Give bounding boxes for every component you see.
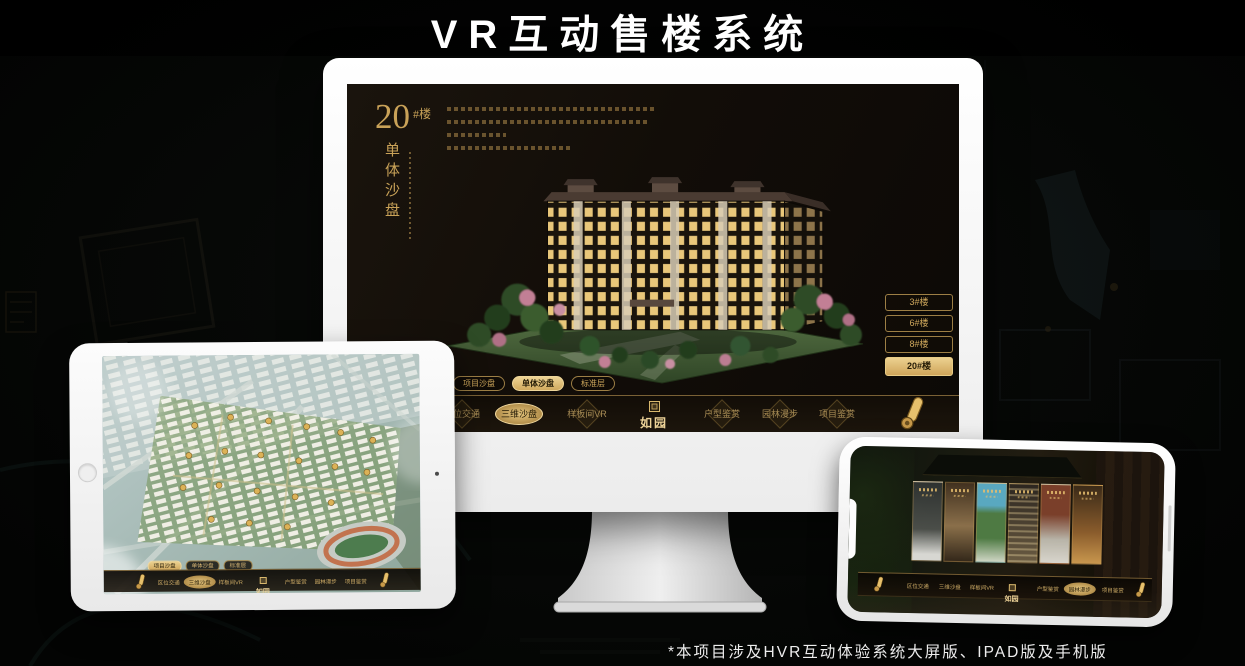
floor-button-group: 3#楼 6#楼 8#楼 20#楼 [885,294,953,380]
scroll-icon[interactable] [378,571,393,589]
pavilion-roof-silhouette [922,447,1083,478]
nav-item[interactable]: 样板间VR [558,396,616,432]
nav-item[interactable]: 三维沙盘 [935,583,965,592]
nav-item[interactable]: 区位交通 [903,582,933,591]
seal-icon [649,401,660,412]
nav-item[interactable]: 项目鉴赏 [341,577,371,585]
floor-button[interactable]: 3#楼 [885,294,953,311]
nav-item-active[interactable]: 三维沙盘 [490,396,548,432]
brand-logo-text: 如园 [999,596,1025,604]
floor-button[interactable]: 6#楼 [885,315,953,332]
nav-item-active[interactable]: 园林漫步 [1064,582,1096,596]
view-tab-group: 项目沙盘 单体沙盘 标准层 [453,376,615,391]
tablet-screen: 项目沙盘 单体沙盘 标准层 区位交通 三维沙盘 样板间VR 如园 户型鉴赏 园林… [102,354,421,594]
nav-item[interactable]: 园林漫步 [751,396,809,432]
nav-item[interactable]: 样板间VR [967,583,997,592]
gallery-panel-row [911,481,1103,565]
nav-item[interactable]: 样板间VR [216,578,246,586]
main-nav-bar: 区位交通 三维沙盘 样板间VR 如园 户型鉴赏 园林漫步 项目鉴赏 [104,568,421,592]
page-title: VR互动售楼系统 [0,2,1245,60]
tablet: 项目沙盘 单体沙盘 标准层 区位交通 三维沙盘 样板间VR 如园 户型鉴赏 园林… [69,341,456,612]
seal-icon [259,577,266,584]
phone: 区位交通 三维沙盘 样板间VR 如园 户型鉴赏 园林漫步 项目鉴赏 [836,437,1176,628]
monitor-stand [540,510,780,615]
side-button[interactable] [1168,505,1172,551]
footnote: *本项目涉及HVR互动体验系统大屏版、IPAD版及手机版 [668,640,1108,662]
gallery-panel[interactable] [1007,483,1039,564]
view-tab-active[interactable]: 单体沙盘 [512,376,564,391]
promo-poster: VR互动售楼系统 20 #楼 单体沙盘 [0,0,1245,666]
camera-dot [435,472,439,476]
headline-vertical: 单体沙盘 [381,142,402,222]
nav-item[interactable]: 项目鉴赏 [1098,586,1128,595]
aerial-map-view[interactable] [102,354,421,594]
headline-english-line [409,152,411,240]
nav-item[interactable]: 户型鉴赏 [1033,585,1063,594]
nav-item[interactable]: 项目鉴赏 [808,396,866,432]
brand-logo: 如园 [999,578,1026,604]
headline: 20 #楼 单体沙盘 [375,100,431,222]
building-3d-view[interactable] [439,148,871,386]
notch [848,499,856,559]
nav-item[interactable]: 园林漫步 [311,577,341,585]
gallery-panel[interactable] [975,482,1007,563]
scroll-icon[interactable] [872,575,887,593]
scroll-icon[interactable] [897,397,931,431]
floor-button[interactable]: 8#楼 [885,336,953,353]
home-button[interactable] [78,463,97,482]
gallery-panel[interactable] [943,482,975,563]
view-tab[interactable]: 标准层 [571,376,615,391]
brand-logo-text: 如园 [630,417,678,430]
nav-item[interactable]: 区位交通 [154,579,184,587]
gallery-panel[interactable] [911,481,943,562]
brand-logo: 如园 [630,399,678,431]
gallery-panel[interactable] [1039,484,1071,565]
seal-icon [1008,584,1015,591]
nav-item-active[interactable]: 三维沙盘 [184,575,216,588]
brand-logo-text: 如园 [250,589,276,594]
headline-suffix: #楼 [413,105,431,122]
floor-button-active[interactable]: 20#楼 [885,357,953,376]
gallery-panel[interactable] [1071,484,1103,565]
view-tab[interactable]: 项目沙盘 [453,376,505,391]
scroll-icon[interactable] [1134,581,1149,599]
nav-item[interactable]: 户型鉴赏 [693,396,751,432]
phone-screen: 区位交通 三维沙盘 样板间VR 如园 户型鉴赏 园林漫步 项目鉴赏 [847,446,1164,619]
brand-logo: 如园 [250,571,276,594]
nav-item[interactable]: 户型鉴赏 [281,578,311,586]
headline-number: 20 [375,100,410,134]
scroll-icon[interactable] [134,573,149,591]
